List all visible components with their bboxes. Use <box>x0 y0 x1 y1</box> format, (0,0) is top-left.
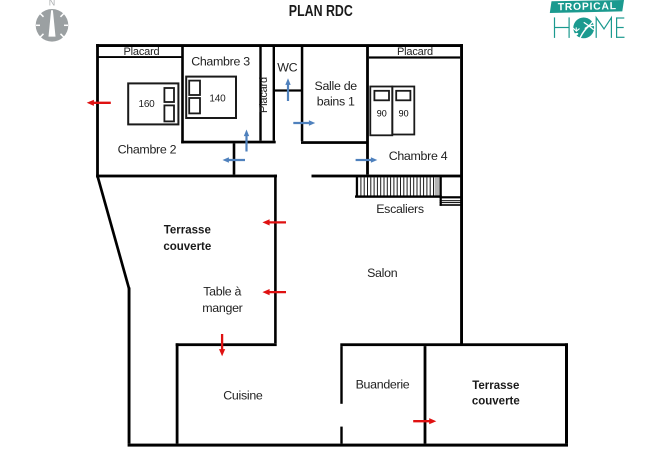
svg-text:Terrasse: Terrasse <box>472 380 519 392</box>
svg-text:Escaliers: Escaliers <box>376 202 424 216</box>
svg-text:Placard: Placard <box>258 77 270 113</box>
svg-text:Buanderie: Buanderie <box>356 377 410 391</box>
svg-text:90: 90 <box>377 109 387 119</box>
svg-text:couverte: couverte <box>163 241 211 253</box>
svg-text:Chambre 2: Chambre 2 <box>118 142 177 156</box>
svg-text:manger: manger <box>202 301 242 315</box>
svg-text:Terrasse: Terrasse <box>164 224 211 236</box>
svg-text:PLAN RDC: PLAN RDC <box>289 2 353 20</box>
svg-text:90: 90 <box>399 109 409 119</box>
svg-text:Chambre 4: Chambre 4 <box>389 149 448 163</box>
svg-text:Salon: Salon <box>367 266 398 280</box>
svg-text:Table à: Table à <box>203 285 241 299</box>
svg-text:couverte: couverte <box>472 395 520 407</box>
svg-text:160: 160 <box>138 99 155 110</box>
svg-text:Placard: Placard <box>397 46 433 58</box>
svg-text:Salle de: Salle de <box>315 79 358 93</box>
svg-text:bains 1: bains 1 <box>317 95 355 109</box>
svg-text:140: 140 <box>209 93 226 104</box>
svg-text:Placard: Placard <box>124 46 160 58</box>
svg-text:Cuisine: Cuisine <box>223 388 263 402</box>
svg-text:TROPICAL: TROPICAL <box>558 1 617 13</box>
svg-text:N: N <box>49 0 56 8</box>
svg-text:WC: WC <box>277 61 297 75</box>
svg-text:Chambre 3: Chambre 3 <box>191 55 250 69</box>
